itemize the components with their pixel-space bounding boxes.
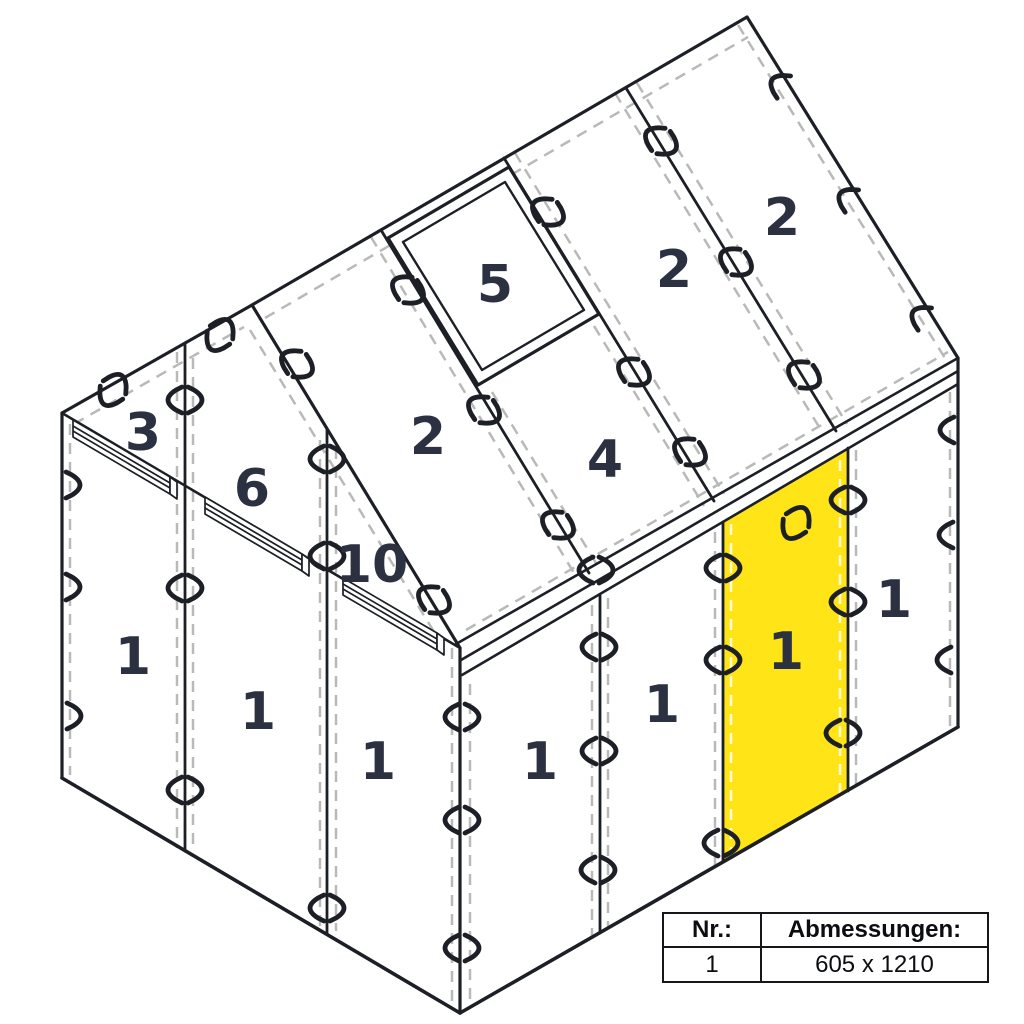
label-wall-panel-4: 1 [876,570,912,630]
clip-pair-icon [715,242,758,282]
label-gable-panel-2: 1 [240,682,276,742]
clip-pair-icon [445,935,479,961]
clip-icon [833,183,858,212]
table-header-row: Nr.: Abmessungen: [663,913,988,947]
label-bar-3: 3 [125,403,161,463]
clip-pair-icon [413,580,456,620]
wall-top-edge [462,384,958,675]
label-gable-panel-1: 1 [115,627,151,687]
table-header-nr: Nr.: [663,913,761,947]
label-roof-under-window: 4 [587,430,623,490]
clip-pair-icon [783,355,826,395]
label-wall-panel-1: 1 [522,732,558,792]
clip-pair-icon [445,704,479,730]
greenhouse-diagram: 3 6 10 1 1 1 2 5 4 2 2 1 1 1 1 Nr.: Abme… [0,0,1024,1024]
clip-icon [940,417,954,443]
label-wall-panel-2: 1 [644,675,680,735]
label-wall-panel-3: 1 [768,622,804,682]
clip-pair-icon [200,314,240,356]
gable-bottom-edge [62,778,460,1013]
clip-pair-icon [581,857,615,883]
table-row: 1 605 x 1210 [663,947,988,982]
clip-icon [66,574,80,600]
dash-line [250,330,442,645]
clip-icon [66,472,80,498]
label-roof-mid: 2 [656,240,692,300]
clip-pair-icon [445,807,479,833]
bar-endcap [170,477,177,499]
clip-pair-icon [537,505,580,545]
table-header-dimensions: Abmessungen: [761,913,988,947]
table-cell-dimensions: 605 x 1210 [761,947,988,982]
label-roof-back: 2 [764,188,800,248]
label-gable-panel-3: 1 [360,732,396,792]
bar-endcap [437,633,444,655]
label-bar-6: 6 [234,459,270,519]
dimensions-table: Nr.: Abmessungen: 1 605 x 1210 [662,912,989,983]
label-roof-window: 5 [477,255,513,315]
table-cell-nr: 1 [663,947,761,982]
label-roof-front: 2 [410,407,446,467]
greenhouse-panel-diagram: 3 6 10 1 1 1 2 5 4 2 2 1 1 1 1 [0,0,1024,1024]
clip-pair-icon [640,121,683,161]
label-bar-10: 10 [336,535,408,595]
dash-line [492,392,599,568]
clip-pair-icon [276,344,319,384]
